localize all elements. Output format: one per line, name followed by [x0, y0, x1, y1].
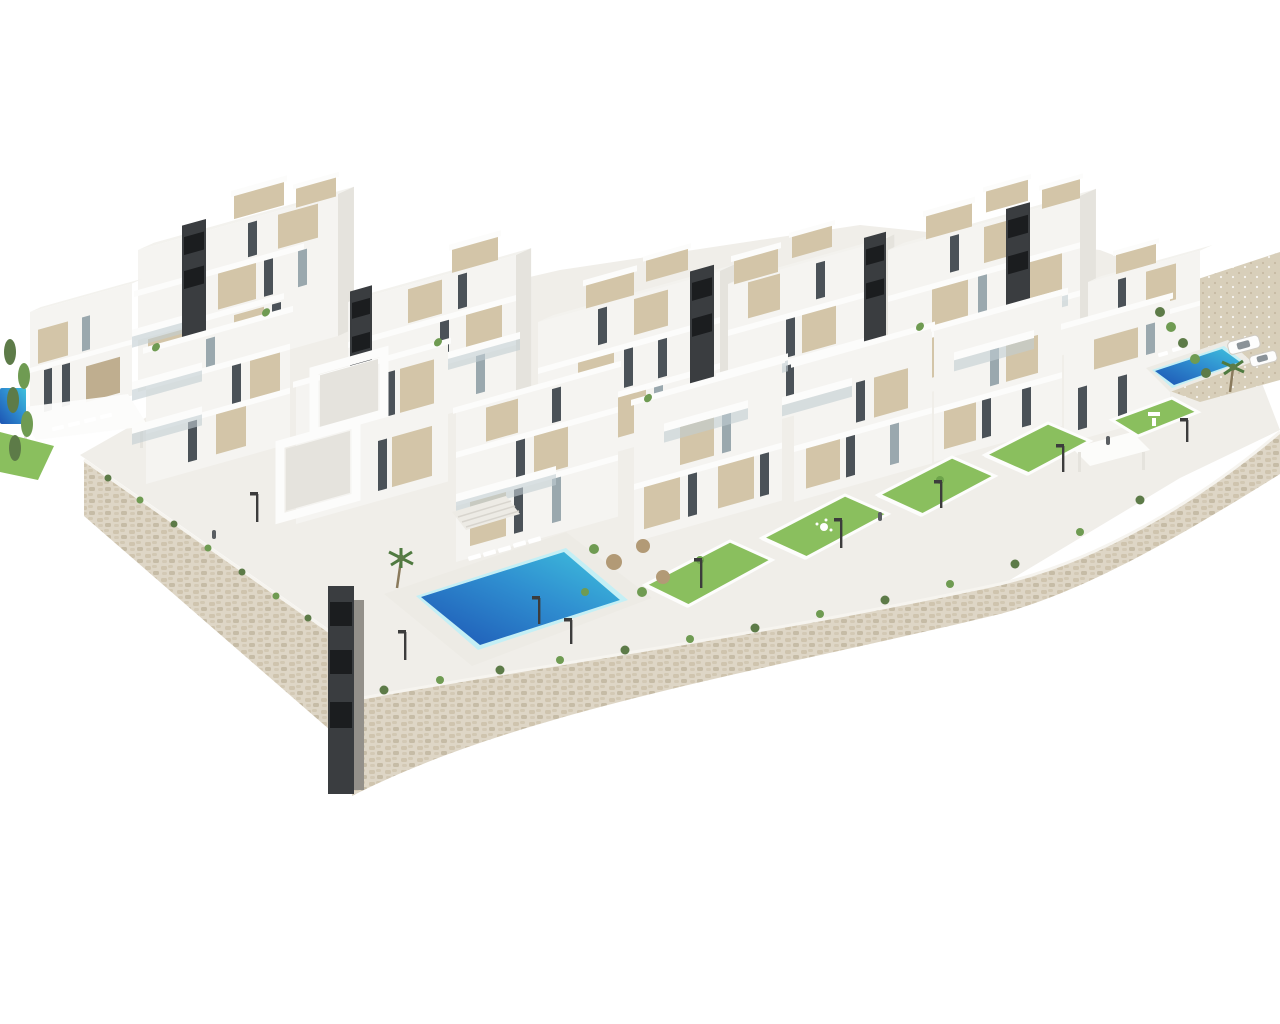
garden-chair [816, 523, 819, 526]
lamp-pole [256, 494, 258, 522]
hedge-tuft [380, 686, 389, 695]
window-strip [458, 273, 467, 310]
window-strip [232, 363, 241, 404]
lamp-pole [940, 482, 942, 508]
person [212, 530, 216, 539]
poolside-shrub [589, 544, 599, 554]
window-strip [552, 387, 561, 424]
hedge-tuft [1136, 496, 1145, 505]
hedge-tuft [273, 593, 280, 600]
conifer-tree [21, 411, 33, 437]
lamp-head [1056, 444, 1064, 448]
side-face [516, 248, 531, 395]
window-strip [598, 307, 607, 346]
cypress-tree [1190, 354, 1200, 364]
person [878, 512, 882, 521]
window-strip [760, 452, 769, 497]
garden-table [820, 523, 828, 531]
hedge-tuft [205, 545, 212, 552]
lamp-pole [570, 620, 572, 644]
architectural-render [0, 0, 1280, 1024]
garden-chair [830, 529, 833, 532]
window-strip [978, 274, 987, 315]
window-strip [516, 439, 525, 482]
window-strip [890, 423, 899, 466]
lamp-pole [700, 560, 702, 588]
window-strip [1118, 374, 1127, 419]
poolside-shrub [637, 587, 647, 597]
hedge-tuft [137, 497, 144, 504]
cypress-tree [1178, 338, 1188, 348]
lamp-pole [538, 598, 540, 624]
shaft-window-band [330, 702, 352, 728]
hedge-tuft [621, 646, 630, 655]
window-strip [624, 347, 633, 388]
window-strip [982, 398, 991, 439]
hedge-tuft [1011, 560, 1020, 569]
conifer-tree [4, 339, 16, 365]
parasol [656, 570, 670, 584]
window-strip [846, 435, 855, 478]
lamp-head [1180, 418, 1188, 422]
pergola-post [1142, 452, 1145, 470]
hedge-tuft [881, 596, 890, 605]
hedge-tuft [686, 635, 694, 643]
window-strip [298, 249, 307, 288]
poolside-shrub [581, 588, 589, 596]
shaft-window-band [330, 650, 352, 674]
window-strip [950, 234, 959, 273]
lamp-head [564, 618, 572, 622]
hedge-tuft [305, 615, 312, 622]
conifer-tree [18, 363, 30, 389]
lamp-head [398, 630, 406, 634]
cypress-tree [1166, 322, 1176, 332]
window-strip [658, 338, 667, 379]
pergola-post [1078, 452, 1081, 472]
window-strip [1078, 386, 1087, 431]
hedge-tuft [436, 676, 444, 684]
window-strip [786, 317, 795, 358]
hedge-tuft [239, 569, 246, 576]
shaft-window-band [330, 602, 352, 626]
window-strip [206, 337, 215, 368]
window-strip [82, 315, 90, 351]
hedge-tuft [816, 610, 824, 618]
window-strip [62, 363, 70, 407]
person [1106, 436, 1110, 445]
garden-furniture [1152, 418, 1156, 426]
cypress-tree [1201, 368, 1211, 378]
palm-crown [1230, 364, 1237, 371]
window-strip [378, 439, 387, 492]
hedge-tuft [556, 656, 564, 664]
palm-crown [398, 555, 405, 562]
window-strip [248, 221, 257, 258]
parasol [606, 554, 622, 570]
shaft-concrete-pillar [354, 600, 364, 790]
window-strip [1146, 323, 1155, 356]
garden-chair [825, 519, 828, 522]
parasol [636, 539, 650, 553]
conifer-tree [9, 435, 21, 461]
lamp-head [250, 492, 258, 496]
lamp-pole [1062, 446, 1064, 472]
window-strip [856, 380, 865, 423]
lamp-pole [1186, 420, 1188, 442]
cypress-tree [1155, 307, 1165, 317]
facade-panel [216, 406, 246, 454]
lamp-head [694, 558, 702, 562]
window-strip [688, 472, 697, 517]
window-strip [264, 258, 273, 297]
garden-furniture [1148, 412, 1160, 416]
window-strip [816, 261, 825, 300]
window-strip [1022, 387, 1031, 428]
hedge-tuft [105, 475, 112, 482]
lamp-pole [404, 632, 406, 660]
lamp-head [834, 518, 842, 522]
lamp-head [934, 480, 942, 484]
hedge-tuft [1076, 528, 1084, 536]
hedge-tuft [946, 580, 954, 588]
hedge-tuft [751, 624, 760, 633]
conifer-tree [7, 387, 19, 413]
hedge-tuft [496, 666, 505, 675]
lamp-head [532, 596, 540, 600]
lamp-pole [840, 520, 842, 548]
hedge-tuft [171, 521, 178, 528]
